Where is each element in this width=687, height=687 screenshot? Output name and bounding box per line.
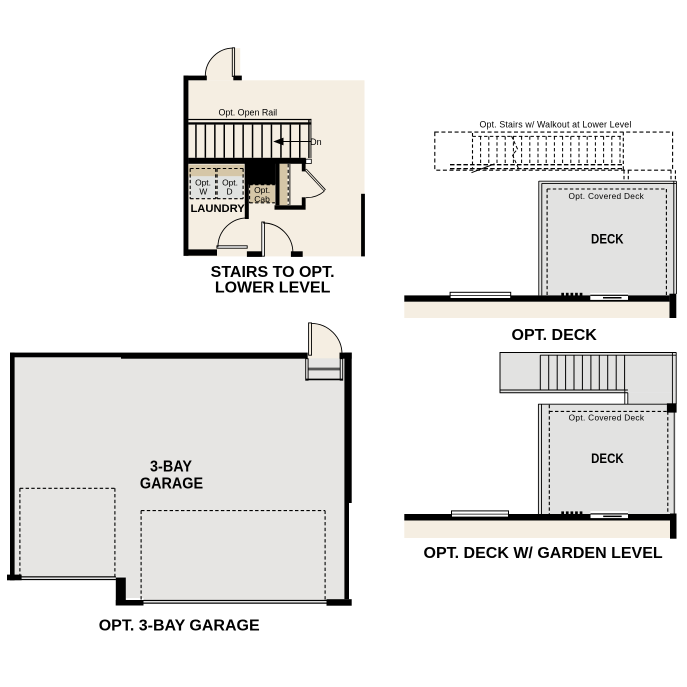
svg-text:OPT. DECK W/ GARDEN LEVEL: OPT. DECK W/ GARDEN LEVEL	[424, 545, 663, 562]
svg-text:STAIRS TO OPT.: STAIRS TO OPT.	[211, 264, 335, 281]
svg-text:Opt. Covered Deck: Opt. Covered Deck	[568, 191, 644, 201]
svg-text:LOWER LEVEL: LOWER LEVEL	[215, 280, 331, 297]
svg-text:Opt. Covered Deck: Opt. Covered Deck	[569, 413, 645, 423]
svg-text:LAUNDRY: LAUNDRY	[190, 203, 245, 215]
svg-text:Opt. Stairs w/ Walkout at Lowe: Opt. Stairs w/ Walkout at Lower Level	[480, 120, 632, 130]
svg-text:OPT. 3-BAY GARAGE: OPT. 3-BAY GARAGE	[99, 618, 260, 635]
svg-text:Cab: Cab	[254, 194, 270, 204]
svg-text:GARAGE: GARAGE	[140, 475, 203, 493]
svg-text:DECK: DECK	[591, 230, 624, 246]
svg-text:W: W	[199, 187, 207, 197]
svg-text:3-BAY: 3-BAY	[150, 458, 192, 476]
svg-text:DECK: DECK	[591, 450, 624, 466]
svg-text:Dn: Dn	[310, 137, 322, 147]
svg-text:D: D	[226, 187, 232, 197]
svg-text:OPT. DECK: OPT. DECK	[512, 327, 598, 344]
svg-text:Opt. Open Rail: Opt. Open Rail	[218, 107, 277, 117]
